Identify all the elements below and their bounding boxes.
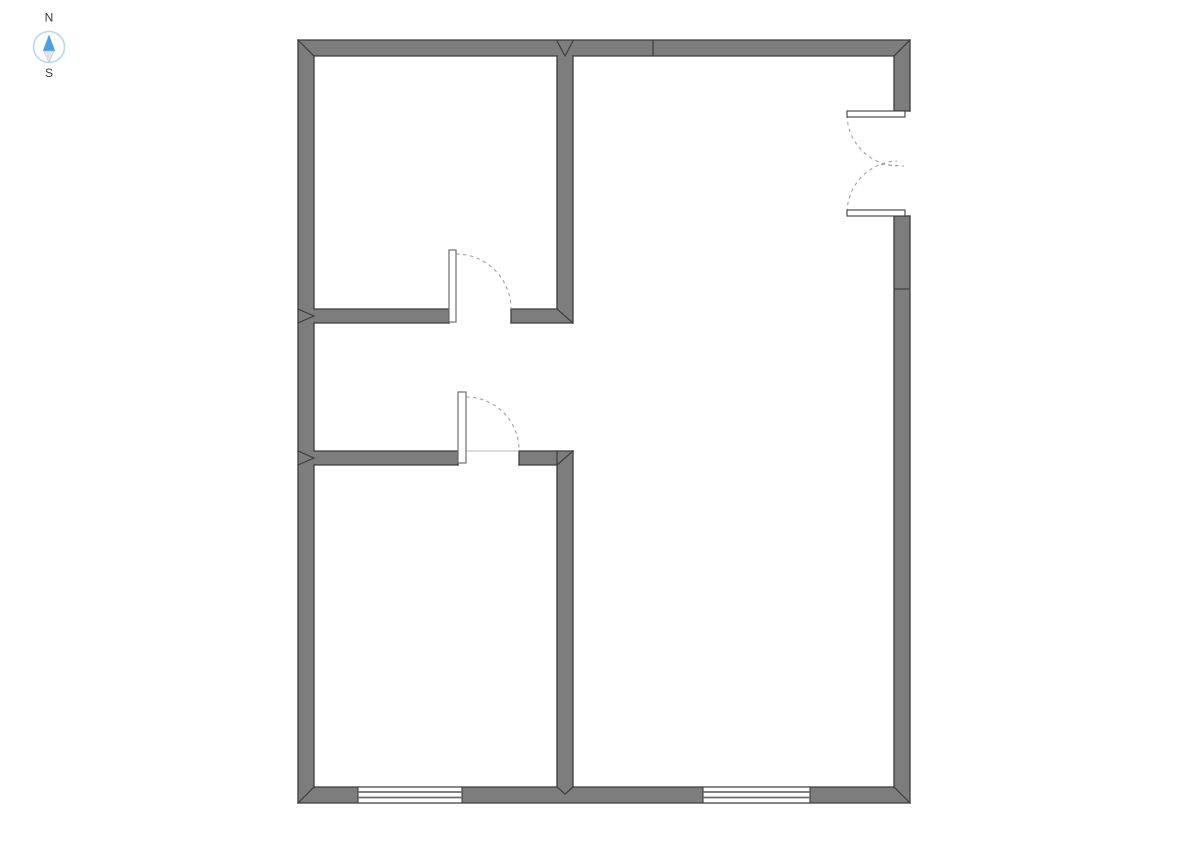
double-door-lower-swing-arc bbox=[847, 161, 897, 212]
double-door-upper-leaf[interactable] bbox=[847, 111, 905, 117]
floorplan-drawing[interactable]: N S bbox=[0, 0, 1191, 841]
wall-right-lower[interactable] bbox=[894, 216, 910, 803]
wall-interior-vertical-lower[interactable] bbox=[557, 451, 573, 803]
door-double-entry[interactable] bbox=[847, 111, 905, 216]
wall-interior-h1-left[interactable] bbox=[298, 309, 449, 323]
wall-left[interactable] bbox=[298, 40, 314, 803]
walls[interactable] bbox=[298, 40, 910, 803]
wall-interior-h2-left[interactable] bbox=[298, 451, 458, 465]
wall-miter-joints bbox=[298, 40, 910, 803]
double-door-meeting-dash bbox=[881, 165, 904, 167]
compass-north-label: N bbox=[45, 11, 54, 25]
wall-interior-vertical-upper[interactable] bbox=[557, 40, 573, 323]
window-2-pane[interactable] bbox=[703, 787, 810, 803]
door-1-swing-arc bbox=[456, 254, 511, 309]
door-2-leaf[interactable] bbox=[458, 392, 466, 463]
compass-rose-icon: N S bbox=[34, 11, 65, 81]
window-1-pane[interactable] bbox=[358, 787, 462, 803]
wall-interior-h1-right[interactable] bbox=[511, 309, 573, 323]
floorplan-canvas[interactable]: N S bbox=[0, 0, 1191, 841]
double-door-lower-leaf[interactable] bbox=[847, 210, 905, 216]
wall-right-upper[interactable] bbox=[894, 40, 910, 111]
compass-south-label: S bbox=[45, 66, 53, 80]
wall-top[interactable] bbox=[298, 40, 910, 56]
double-door-upper-swing-arc bbox=[847, 115, 897, 166]
door-single-1[interactable] bbox=[449, 250, 511, 322]
door-single-2[interactable] bbox=[458, 392, 519, 463]
door-2-swing-arc bbox=[466, 397, 519, 450]
door-1-leaf[interactable] bbox=[449, 250, 456, 322]
wall-borders bbox=[298, 40, 910, 803]
